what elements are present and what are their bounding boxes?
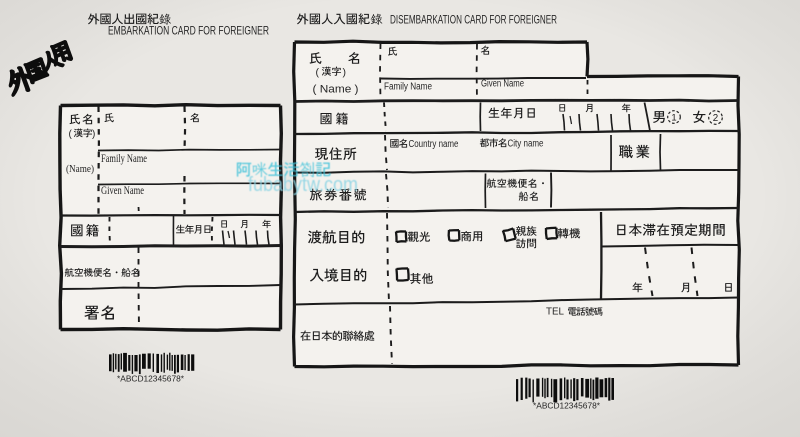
svg-text:Country name: Country name [409, 139, 459, 150]
svg-text:): ) [343, 67, 347, 79]
svg-text:*ABCD12345678*: *ABCD12345678* [533, 401, 601, 411]
svg-text:fubabytw.com: fubabytw.com [248, 173, 358, 196]
svg-text:Given Name: Given Name [101, 185, 144, 197]
svg-text:City name: City name [508, 139, 544, 150]
svg-text:(Name): (Name) [66, 164, 94, 175]
svg-text:TEL: TEL [546, 307, 565, 318]
svg-text:( Name ): ( Name ) [313, 84, 359, 96]
svg-text:*ABCD12345678*: *ABCD12345678* [117, 374, 185, 384]
svg-text:1: 1 [671, 113, 676, 124]
svg-text:Family Name: Family Name [384, 82, 432, 93]
svg-text:EMBARKATION CARD FOR FOREIGNER: EMBARKATION CARD FOR FOREIGNER [108, 25, 269, 38]
svg-text:2: 2 [713, 113, 718, 124]
svg-text:DISEMBARKATION CARD FOR FOREIG: DISEMBARKATION CARD FOR FOREIGNER [390, 14, 557, 27]
svg-text:(: ( [316, 67, 320, 79]
svg-text:): ) [92, 129, 95, 140]
svg-text:Family Name: Family Name [101, 153, 147, 165]
svg-text:Given Name: Given Name [481, 79, 524, 90]
